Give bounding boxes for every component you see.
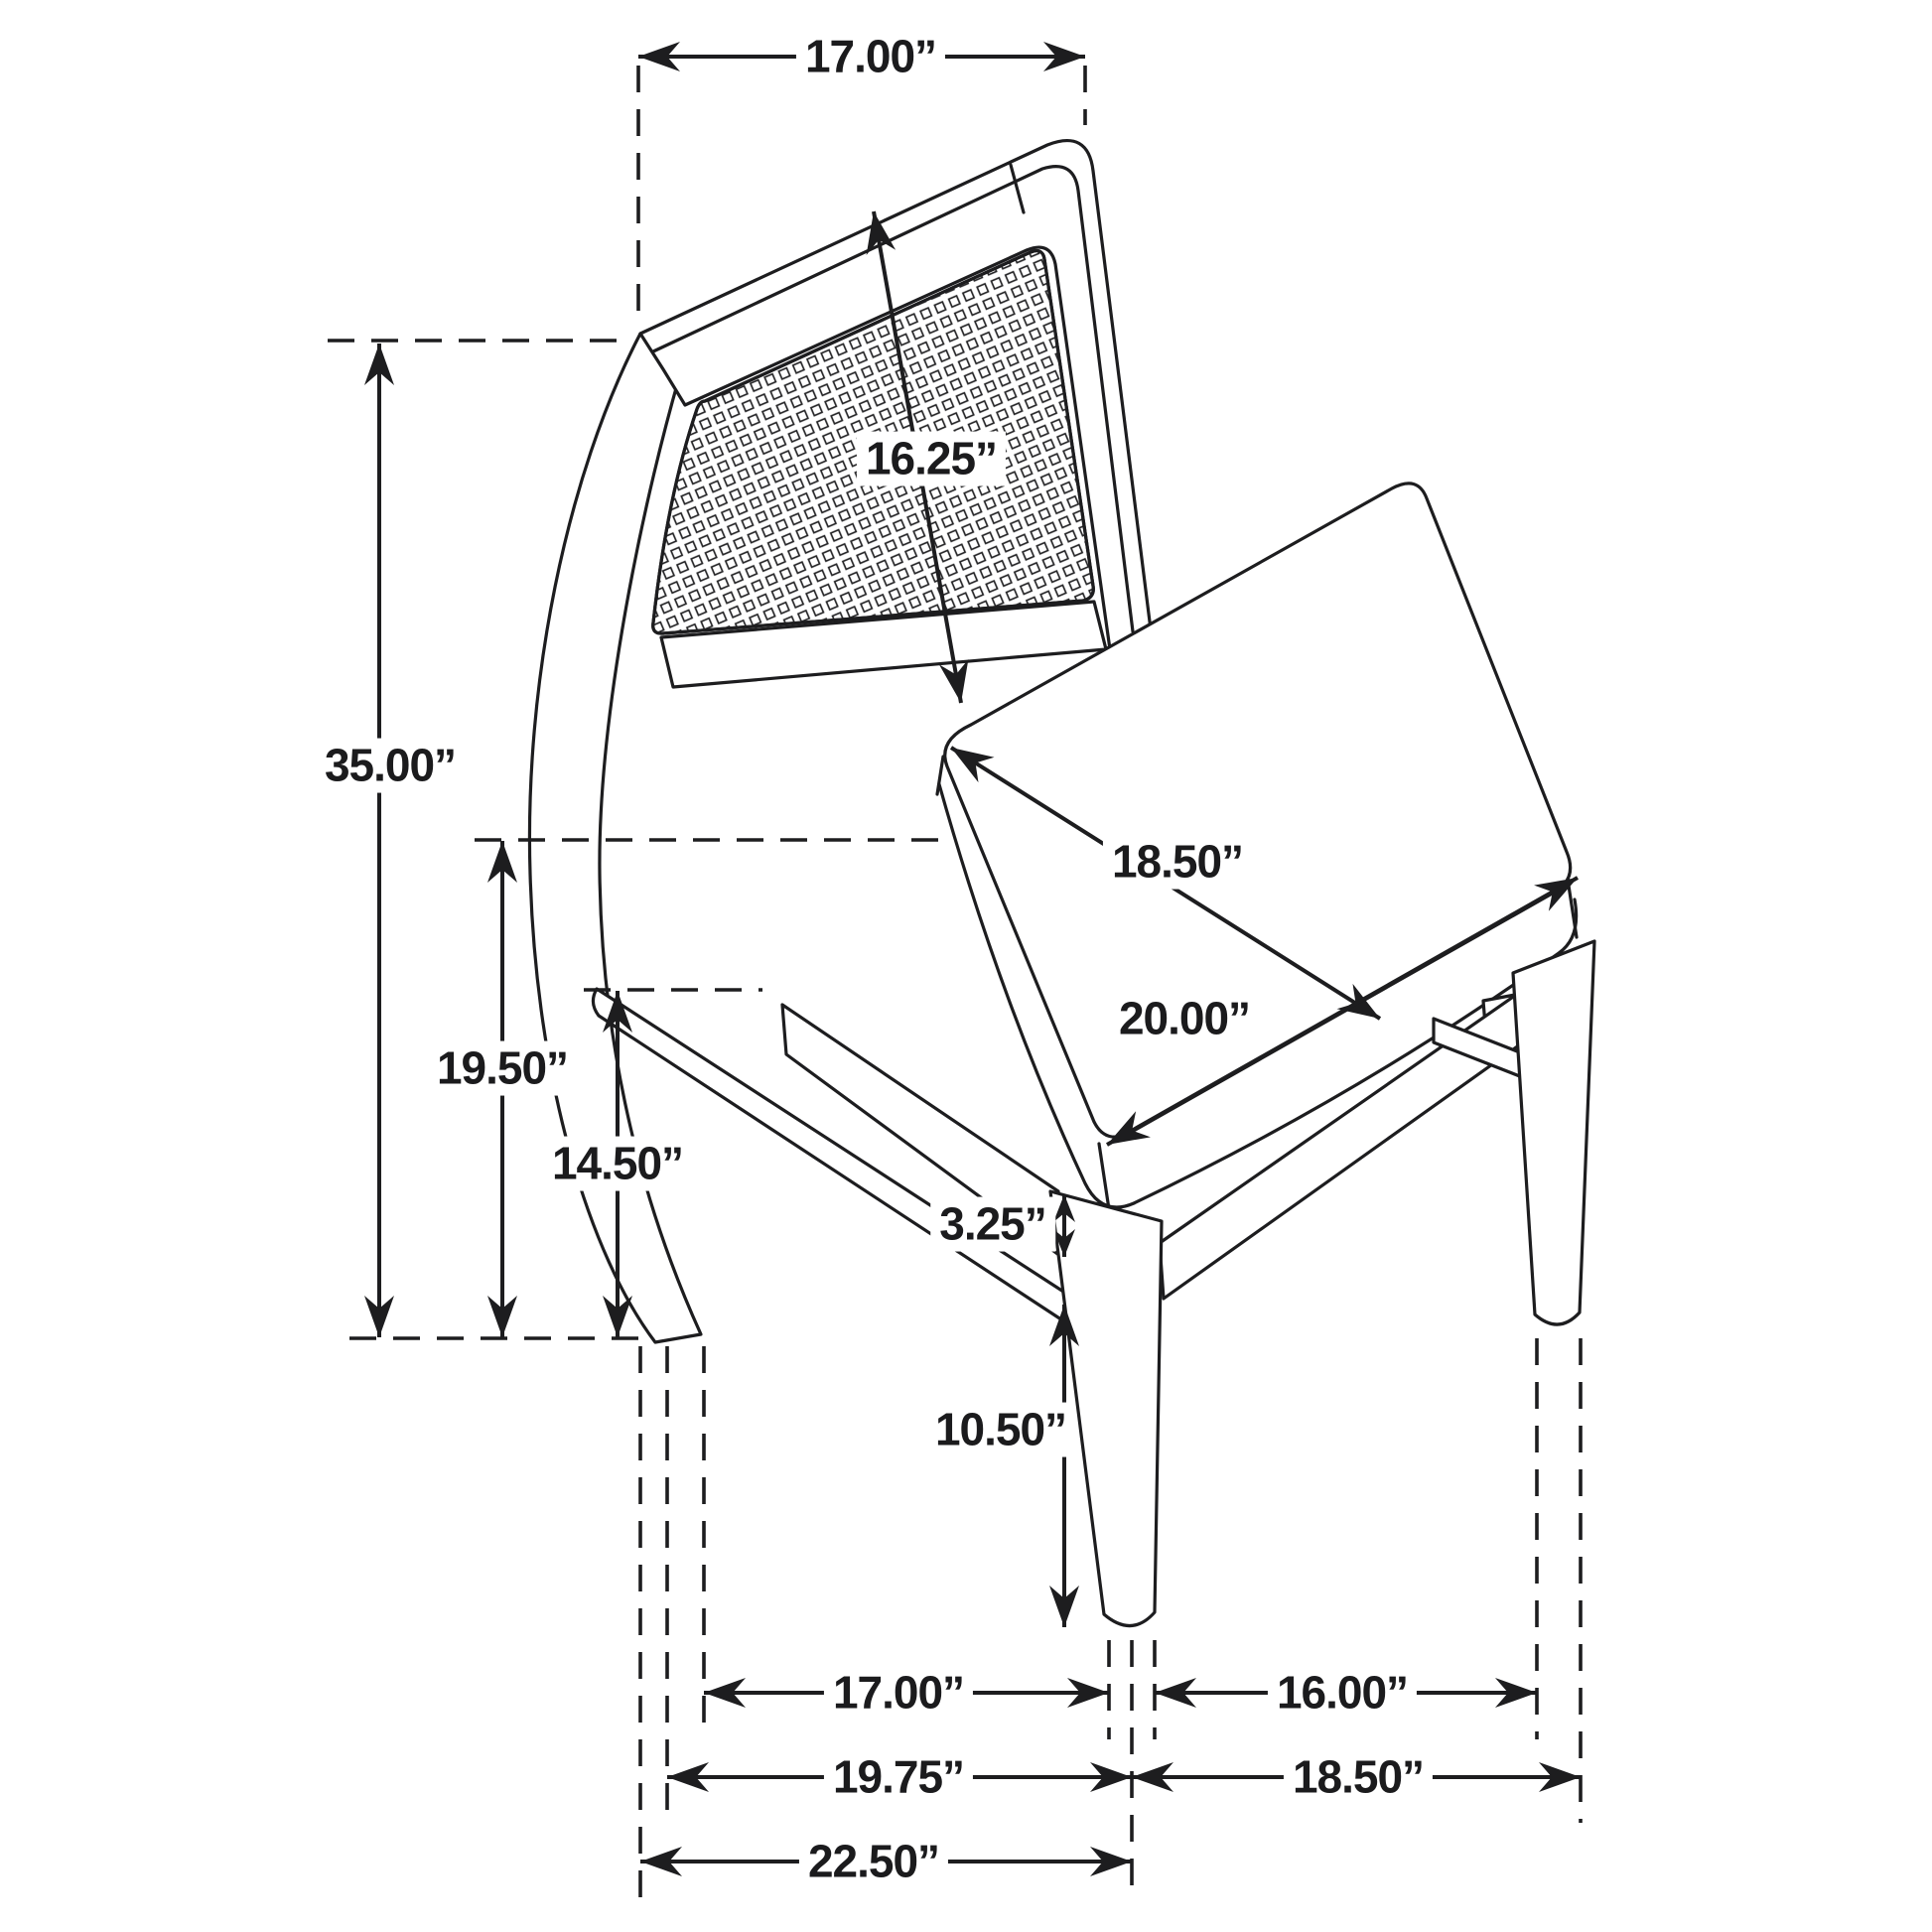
dim-label-leg-span-side: 17.00” [824, 1666, 973, 1721]
dim-label-base-depth: 19.75” [824, 1750, 973, 1805]
dim-label-front-leg-height: 10.50” [926, 1403, 1075, 1457]
dim-label-seat-depth: 18.50” [1103, 835, 1252, 890]
chair-dimension-diagram: 17.00” 16.25” 35.00” 19.50” 14.50” 18.50… [0, 0, 1932, 1932]
dim-label-overall-height: 35.00” [316, 739, 465, 793]
dim-label-apron-thickness: 3.25” [930, 1197, 1055, 1252]
chair-cushion-seam-front [1099, 1144, 1109, 1209]
diagram-canvas [0, 0, 1932, 1932]
dim-label-seat-width: 20.00” [1110, 992, 1259, 1046]
chair-front-right-leg [1513, 941, 1594, 1324]
dim-label-seat-height: 19.50” [428, 1041, 577, 1096]
dim-label-base-width: 18.50” [1284, 1750, 1433, 1805]
dim-label-back-panel-height: 16.25” [857, 432, 1006, 486]
dim-label-leg-span-front: 16.00” [1268, 1666, 1417, 1721]
dim-label-rear-stretcher-height: 14.50” [543, 1137, 692, 1191]
dim-label-overall-depth: 22.50” [799, 1835, 948, 1889]
dim-label-back-width: 17.00” [796, 30, 945, 84]
